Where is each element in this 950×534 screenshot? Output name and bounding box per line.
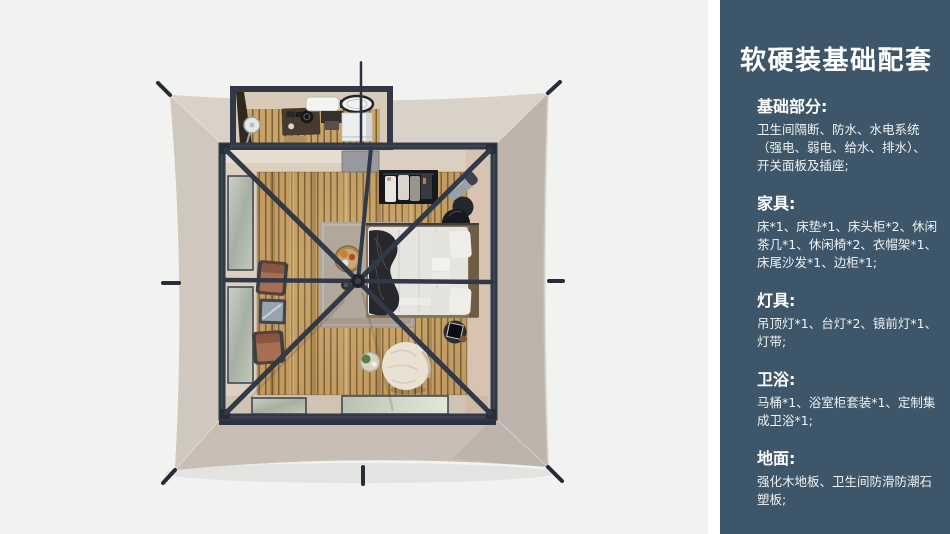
- ground-shadow: [165, 463, 555, 483]
- section-flooring: 地面: 强化木地板、卫生间防滑防潮石 塑板;: [757, 450, 938, 509]
- section-heading: 灯具:: [757, 292, 938, 310]
- tent-top-view: [0, 0, 708, 534]
- section-heading: 基础部分:: [757, 98, 938, 116]
- tea-table: [259, 299, 287, 325]
- center-hub: [351, 274, 365, 288]
- doorway-mat: [342, 151, 379, 172]
- panel-title: 软硬装基础配套: [740, 44, 938, 78]
- skylight: [306, 97, 339, 111]
- tent-render-scene: [0, 0, 708, 534]
- section-basics: 基础部分: 卫生间隔断、防水、水电系统 （强电、弱电、给水、排水）、 开关面板及…: [757, 98, 938, 175]
- section-body: 卫生间隔断、防水、水电系统 （强电、弱电、给水、排水）、 开关面板及插座;: [757, 121, 938, 175]
- washing-machine: [342, 113, 372, 141]
- section-bathroom: 卫浴: 马桶*1、浴室柜套装*1、定制集 成卫浴*1;: [757, 371, 938, 430]
- section-furniture: 家具: 床*1、床垫*1、床头柜*2、休闲 茶几*1、休闲椅*2、衣帽架*1、 …: [757, 195, 938, 272]
- window-bottom-right: [342, 396, 448, 414]
- window-bottom-left: [252, 398, 306, 414]
- canvas-face-right: [494, 93, 548, 467]
- section-heading: 地面:: [757, 450, 938, 468]
- section-lighting: 灯具: 吊顶灯*1、台灯*2、镜前灯*1、 灯带;: [757, 292, 938, 351]
- slide: 软硬装基础配套 基础部分: 卫生间隔断、防水、水电系统 （强电、弱电、给水、排水…: [0, 0, 950, 534]
- white-gap: [708, 0, 720, 534]
- lounge-chair-upper: [256, 260, 289, 296]
- section-heading: 家具:: [757, 195, 938, 213]
- section-heading: 卫浴:: [757, 371, 938, 389]
- washbasin: [340, 96, 373, 112]
- section-body: 强化木地板、卫生间防滑防潮石 塑板;: [757, 473, 938, 509]
- section-body: 马桶*1、浴室柜套装*1、定制集 成卫浴*1;: [757, 394, 938, 430]
- speaker-side-table: [444, 321, 467, 344]
- section-body: 床*1、床垫*1、床头柜*2、休闲 茶几*1、休闲椅*2、衣帽架*1、 床尾沙发…: [757, 218, 938, 272]
- panel-sections: 基础部分: 卫生间隔断、防水、水电系统 （强电、弱电、给水、排水）、 开关面板及…: [740, 98, 938, 509]
- info-panel: 软硬装基础配套 基础部分: 卫生间隔断、防水、水电系统 （强电、弱电、给水、排水…: [720, 0, 950, 534]
- section-body: 吊顶灯*1、台灯*2、镜前灯*1、 灯带;: [757, 315, 938, 351]
- small-plant-table: [361, 353, 380, 372]
- bathroom-annex: [233, 62, 390, 147]
- window-left-lower: [228, 287, 253, 383]
- coat-rack-with-clothes: [379, 170, 438, 204]
- window-left-upper: [228, 176, 253, 270]
